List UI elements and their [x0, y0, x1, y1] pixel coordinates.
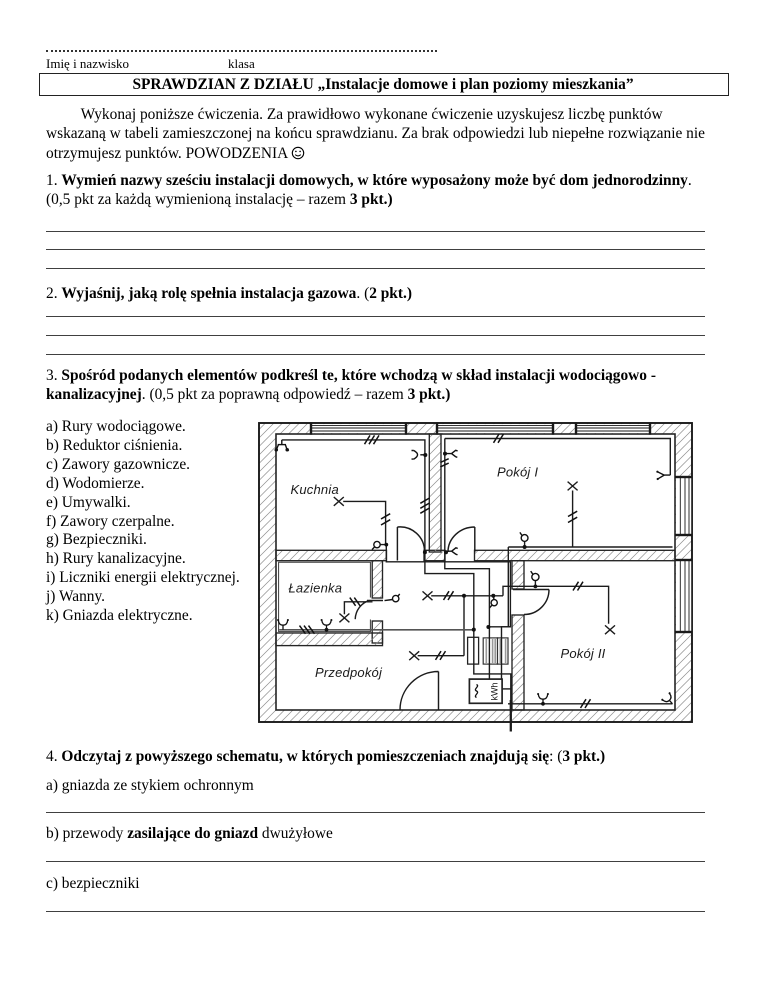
svg-text:kWh: kWh: [490, 683, 500, 701]
svg-text:Kuchnia: Kuchnia: [291, 482, 339, 497]
svg-text:Łazienka: Łazienka: [289, 581, 343, 596]
svg-text:Pokój I: Pokój I: [497, 465, 538, 480]
svg-text:Pokój II: Pokój II: [561, 646, 606, 661]
svg-text:Przedpokój: Przedpokój: [315, 665, 383, 680]
